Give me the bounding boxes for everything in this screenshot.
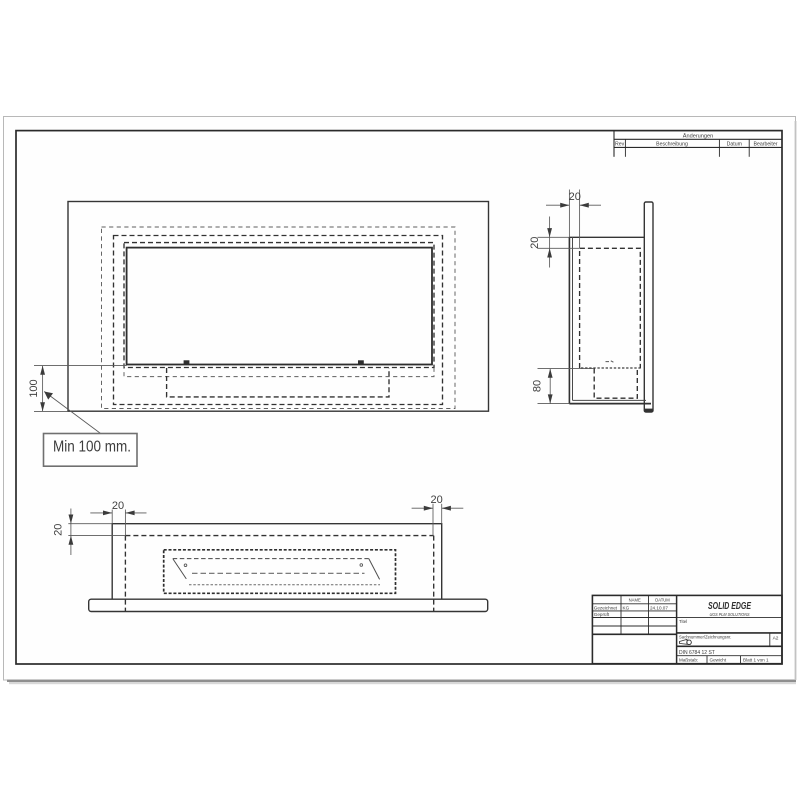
svg-text:20: 20 <box>569 191 581 203</box>
svg-text:Bearbeiter: Bearbeiter <box>754 142 778 148</box>
svg-text:Sachnummer/Zeichnungsnr.: Sachnummer/Zeichnungsnr. <box>679 635 731 640</box>
svg-text:20: 20 <box>53 524 65 536</box>
svg-text:Titel: Titel <box>679 619 687 624</box>
svg-text:NAME: NAME <box>629 597 641 602</box>
svg-text:Datum: Datum <box>727 142 742 148</box>
svg-text:DATUM: DATUM <box>655 597 670 602</box>
svg-text:20: 20 <box>529 237 541 249</box>
svg-text:20: 20 <box>430 494 442 506</box>
svg-text:SOLID EDGE: SOLID EDGE <box>708 600 752 612</box>
svg-text:Blatt 1 von 1: Blatt 1 von 1 <box>743 657 769 662</box>
svg-text:24.10.07: 24.10.07 <box>650 605 668 610</box>
svg-text:Min 100 mm.: Min 100 mm. <box>53 439 131 456</box>
svg-text:100: 100 <box>28 379 40 397</box>
svg-text:Beschreibung: Beschreibung <box>656 142 688 148</box>
svg-text:Gezeichnet: Gezeichnet <box>594 605 618 610</box>
svg-text:A2: A2 <box>773 636 779 642</box>
svg-text:Gewicht: Gewicht <box>710 657 727 662</box>
svg-text:Rev: Rev <box>615 142 625 148</box>
svg-text:20: 20 <box>112 500 124 512</box>
svg-text:Maßstab:: Maßstab: <box>679 657 698 662</box>
svg-text:KG: KG <box>623 605 630 610</box>
svg-text:Geprüft: Geprüft <box>594 612 610 617</box>
svg-text:80: 80 <box>532 380 544 392</box>
svg-text:DIN 6784 12 ST: DIN 6784 12 ST <box>679 650 715 656</box>
svg-text:UGS PLM SOLUTIONS: UGS PLM SOLUTIONS <box>710 612 750 617</box>
svg-text:Änderungen: Änderungen <box>683 133 713 140</box>
